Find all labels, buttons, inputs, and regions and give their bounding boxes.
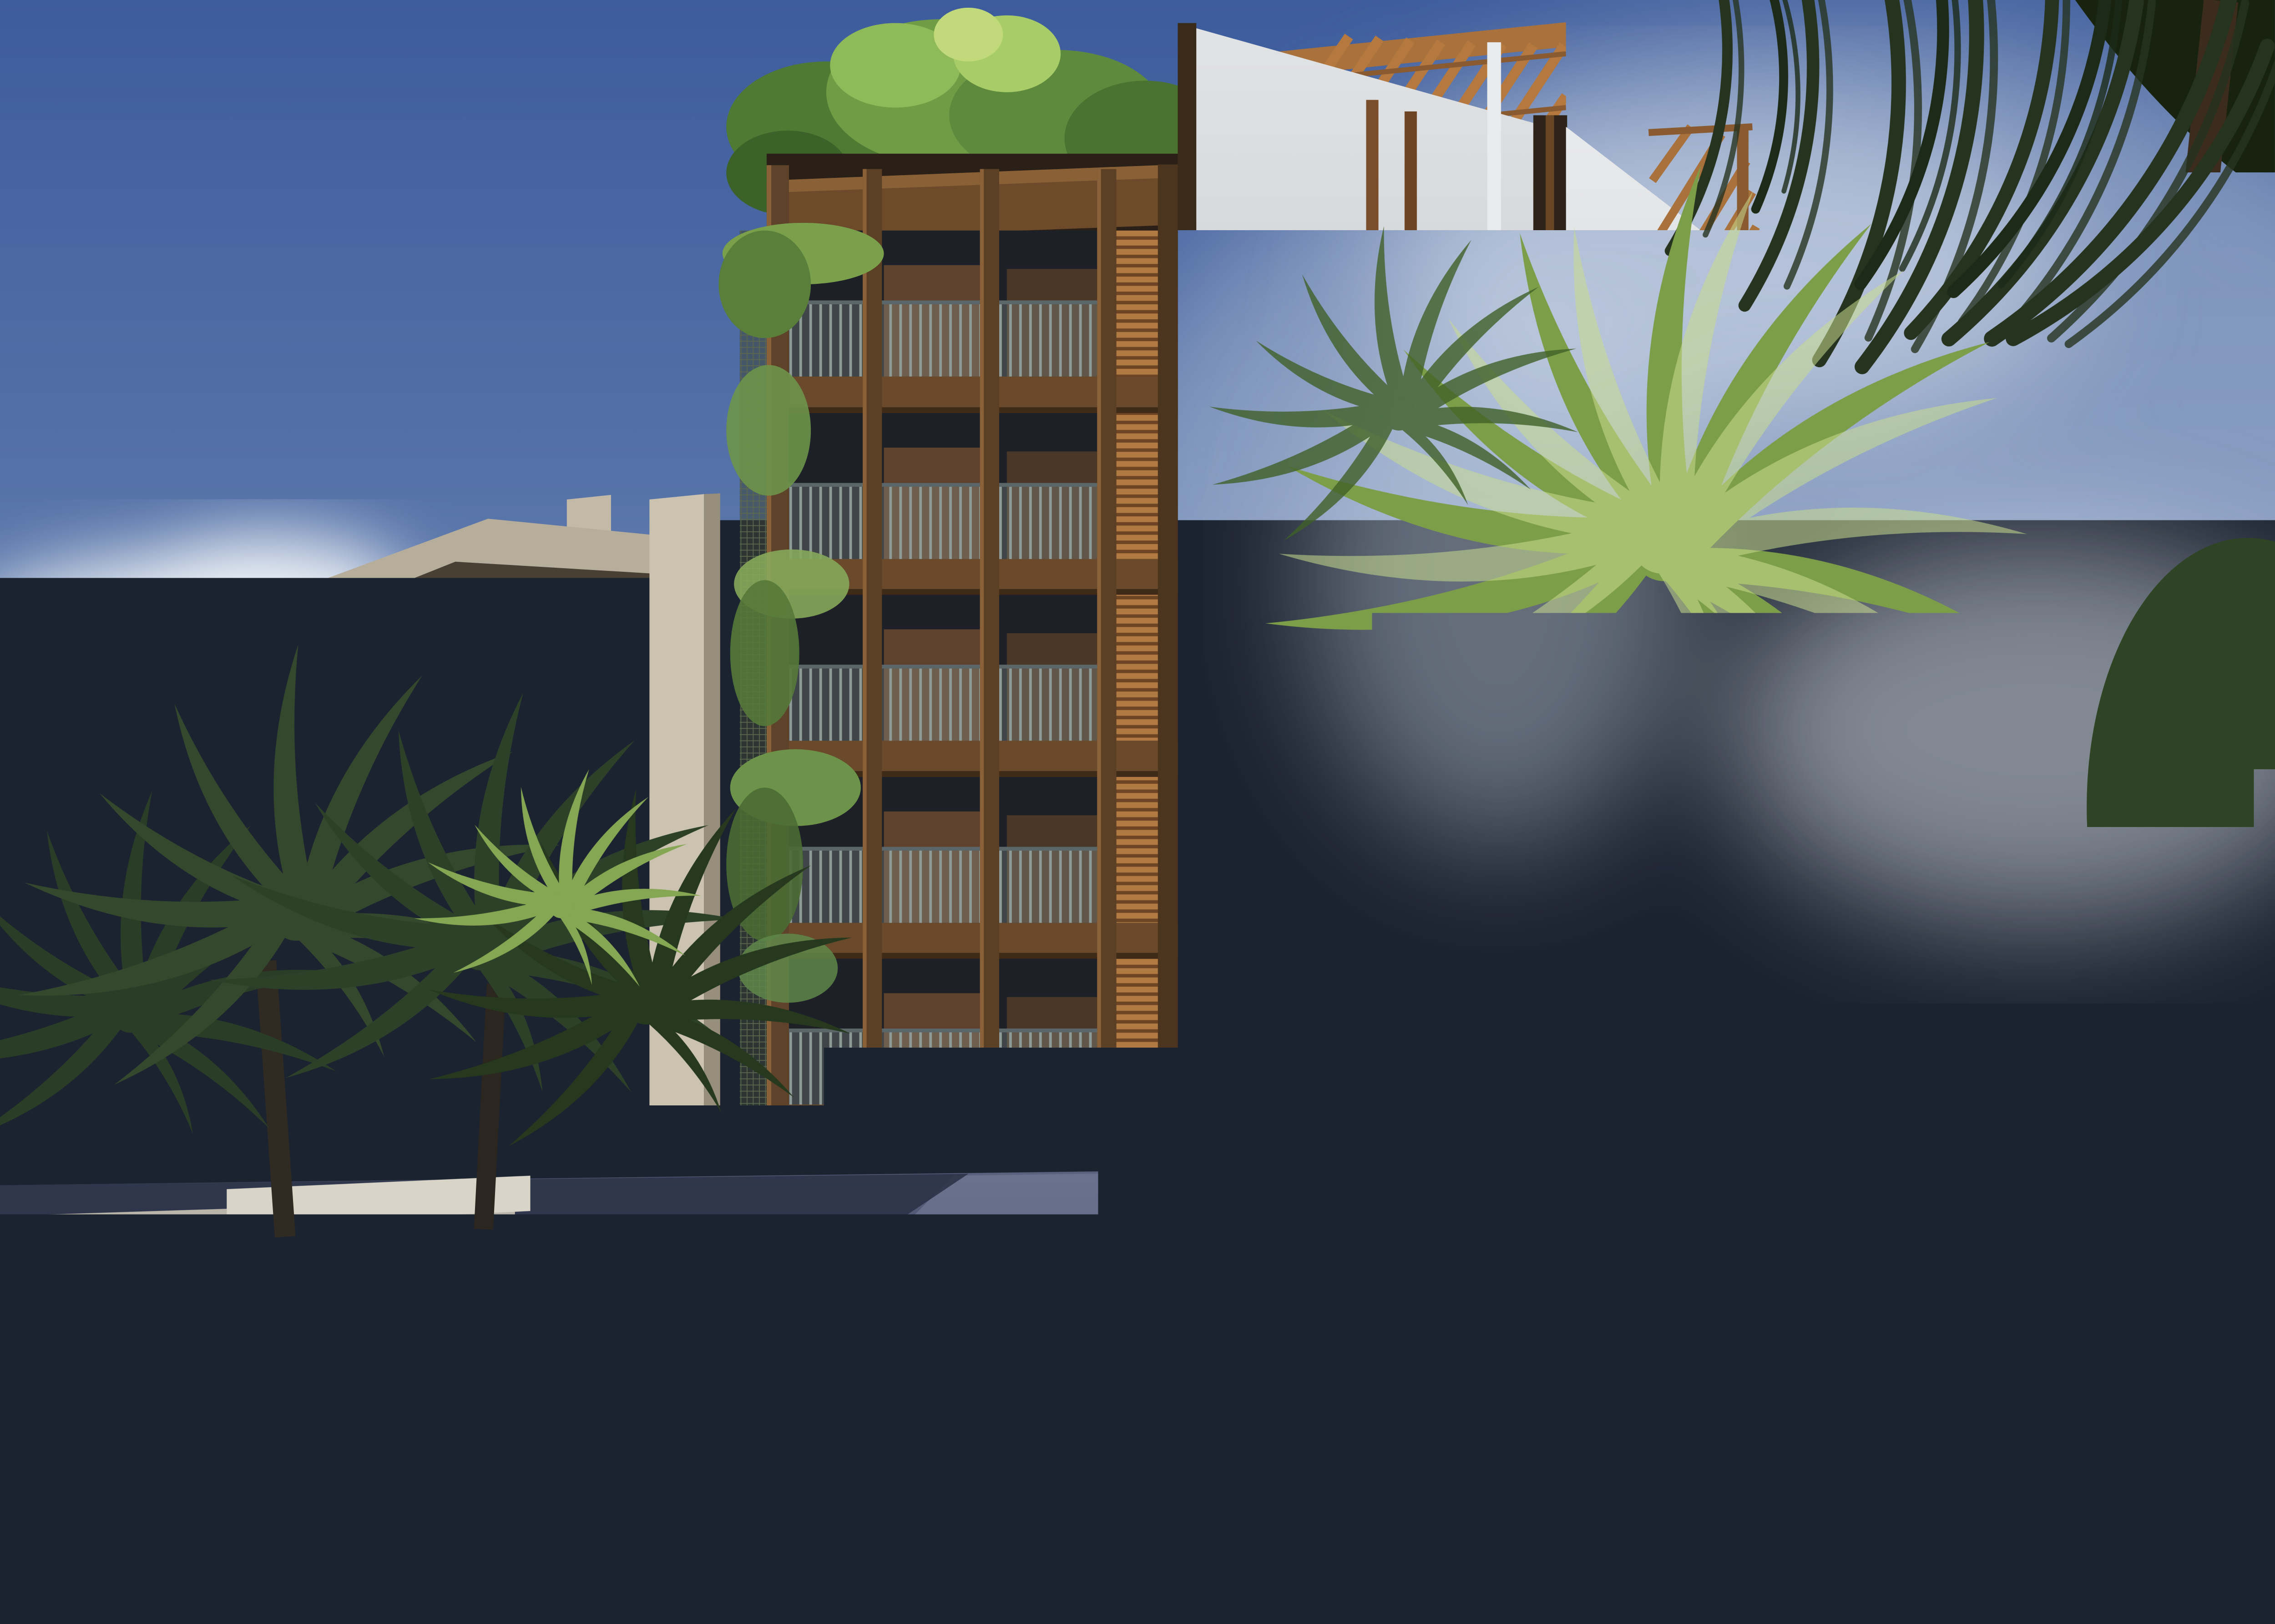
door-handle bbox=[2044, 1329, 2078, 1338]
scene-canvas: BAGÀ RIVIERA APARTMENTS bbox=[0, 0, 2275, 1372]
b-pillar bbox=[1927, 1271, 1934, 1321]
window-palm-reflection bbox=[1945, 1273, 2037, 1309]
window-palm-reflection-2 bbox=[1860, 1285, 1929, 1312]
coupe-taillight bbox=[1498, 1292, 1513, 1302]
architectural-rendering: BAGÀ RIVIERA APARTMENTS bbox=[0, 0, 2275, 1372]
white-pole bbox=[1487, 42, 1501, 327]
corner-trim bbox=[1178, 23, 1197, 1189]
apartment-tower: BAGÀ RIVIERA APARTMENTS bbox=[718, 8, 1226, 1265]
door-handle bbox=[1879, 1333, 1913, 1342]
license-plate bbox=[1470, 1308, 1499, 1324]
